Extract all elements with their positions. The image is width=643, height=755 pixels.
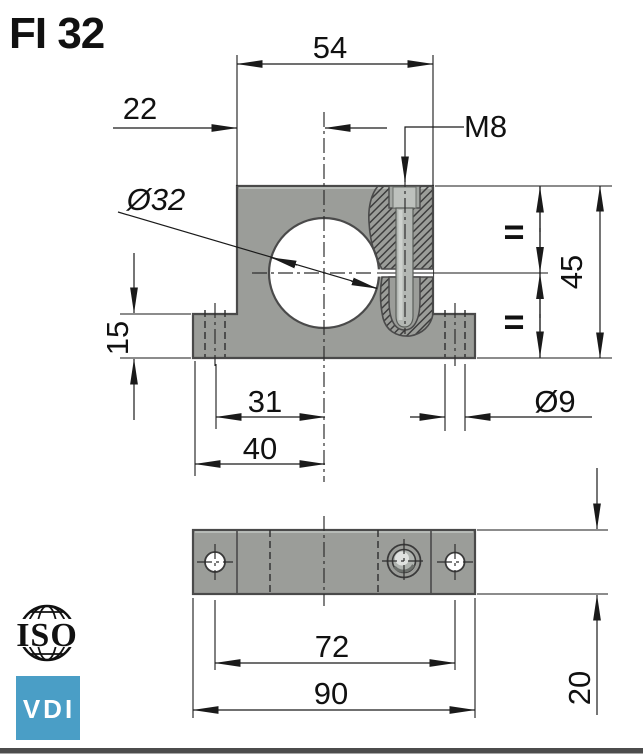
dim-equal-segments: = = (503, 186, 540, 358)
dim-top-width: 54 (237, 30, 433, 186)
base-plate (193, 530, 475, 594)
dim-height: 45 (554, 186, 600, 358)
dim-base-height: 15 (100, 253, 191, 420)
top-view: 20 72 90 (193, 468, 608, 718)
dim-label-54: 54 (313, 30, 347, 65)
dim-label-dia9: Ø9 (534, 384, 575, 419)
dim-label-31: 31 (248, 384, 282, 419)
vdi-logo-text: VDI (23, 694, 75, 724)
page-title: FI 32 (9, 9, 104, 58)
dim-center-offset: 22 (113, 91, 387, 128)
thread-callout: M8 (405, 109, 507, 182)
dim-hole-center: 31 (216, 364, 325, 429)
dim-label-22: 22 (123, 91, 157, 126)
iso-logo-text: ISO (16, 617, 78, 654)
iso-logo: ISO (11, 606, 83, 660)
dim-label-40: 40 (243, 431, 277, 466)
dim-hole-spacing: 72 (215, 600, 455, 670)
bore-label: Ø32 (126, 182, 186, 217)
dim-label-15: 15 (100, 321, 135, 355)
dim-label-45: 45 (554, 255, 589, 289)
bottom-divider (0, 748, 643, 754)
front-view: 54 22 M8 Ø32 (100, 30, 612, 482)
technical-drawing: FI 32 (0, 0, 643, 755)
equal-mark-bottom: = (503, 301, 524, 342)
equal-mark-top: = (503, 211, 524, 252)
dim-hole-dia: Ø9 (410, 364, 592, 431)
thread-label: M8 (464, 109, 507, 144)
dim-depth: 20 (477, 468, 608, 715)
dim-label-20: 20 (562, 671, 597, 705)
vdi-logo: VDI (16, 676, 80, 740)
dim-label-72: 72 (315, 629, 349, 664)
dim-label-90: 90 (314, 676, 348, 711)
